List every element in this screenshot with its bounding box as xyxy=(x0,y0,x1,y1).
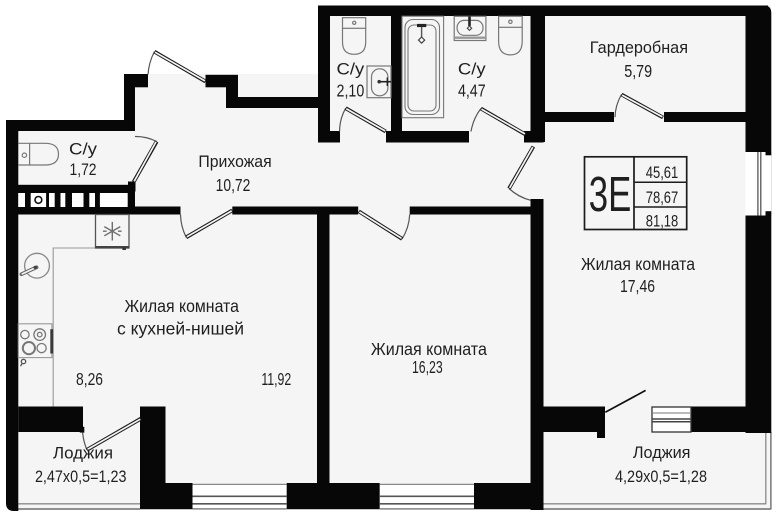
svg-text:1,72: 1,72 xyxy=(70,160,97,179)
svg-text:16,23: 16,23 xyxy=(412,357,443,377)
svg-text:Гардеробная: Гардеробная xyxy=(590,38,688,57)
svg-text:11,92: 11,92 xyxy=(261,369,291,389)
svg-text:Жилая комната: Жилая комната xyxy=(581,254,695,274)
svg-text:2,10: 2,10 xyxy=(337,81,365,101)
svg-text:3Е: 3Е xyxy=(589,168,632,222)
svg-text:8,26: 8,26 xyxy=(76,369,103,389)
svg-text:4,29х0,5=1,28: 4,29х0,5=1,28 xyxy=(615,467,707,486)
svg-text:5,79: 5,79 xyxy=(624,61,652,81)
svg-text:Лоджия: Лоджия xyxy=(53,444,113,463)
svg-text:С/у: С/у xyxy=(337,61,366,79)
svg-text:Жилая комната: Жилая комната xyxy=(124,296,239,316)
svg-text:с кухней-нишей: с кухней-нишей xyxy=(117,319,244,339)
svg-text:17,46: 17,46 xyxy=(620,276,655,296)
svg-text:2,47х0,5=1,23: 2,47х0,5=1,23 xyxy=(35,467,127,486)
svg-text:С/у: С/у xyxy=(458,61,487,79)
svg-text:Лоджия: Лоджия xyxy=(633,443,691,462)
svg-text:Жилая комната: Жилая комната xyxy=(371,339,487,359)
svg-text:С/у: С/у xyxy=(69,141,98,159)
svg-text:45,61: 45,61 xyxy=(646,163,679,182)
svg-text:81,18: 81,18 xyxy=(646,212,679,231)
svg-text:78,67: 78,67 xyxy=(646,188,679,207)
svg-text:Прихожая: Прихожая xyxy=(198,152,271,171)
svg-text:10,72: 10,72 xyxy=(216,175,251,195)
svg-text:4,47: 4,47 xyxy=(458,81,486,101)
